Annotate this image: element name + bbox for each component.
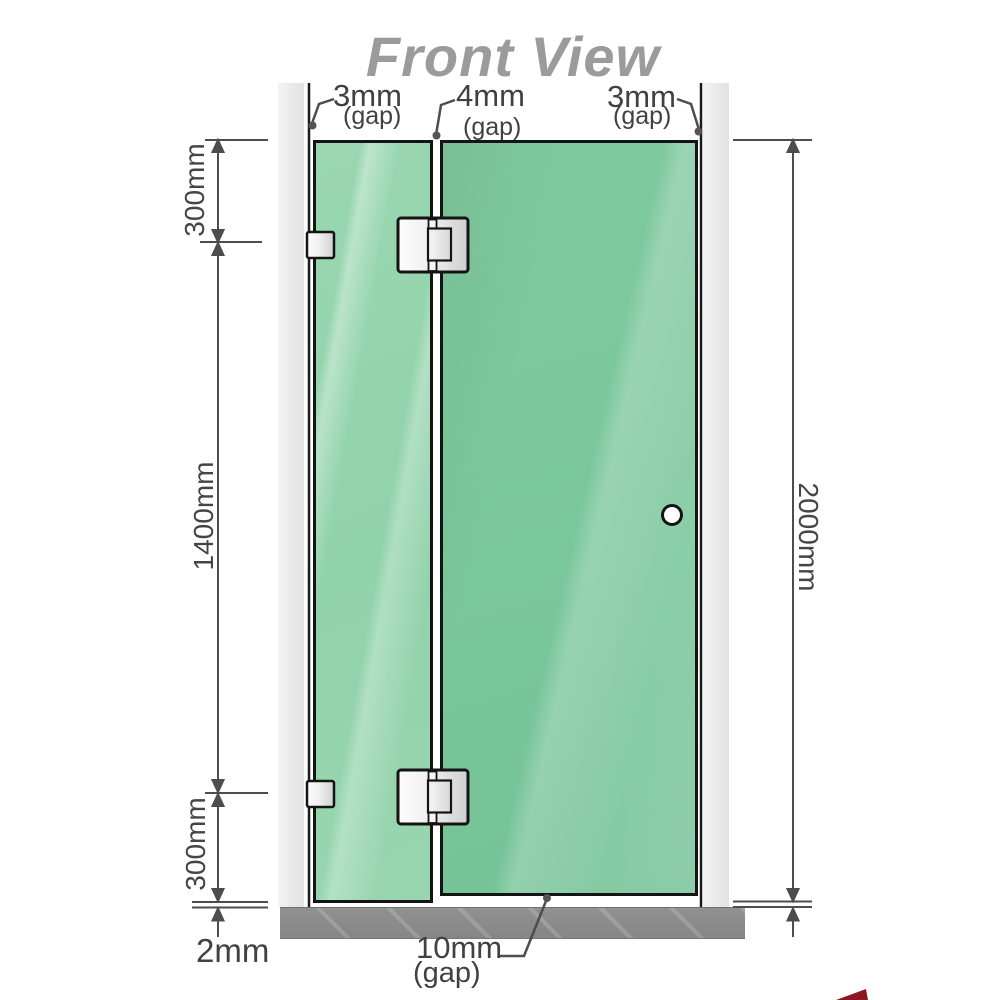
wall-edge-lines	[309, 83, 701, 907]
wall-bracket-top	[307, 232, 334, 258]
gap-qualifier-bottom: (gap)	[413, 959, 481, 988]
leader-dots	[309, 122, 703, 903]
hinge-top	[398, 218, 468, 272]
front-view-diagram: Front View	[0, 0, 1000, 1000]
leader-lines	[313, 99, 699, 956]
gap-qualifier-top-middle: (gap)	[463, 115, 521, 140]
dim-label-2mm: 2mm	[196, 934, 269, 969]
dim-label-top-300mm: 300mm	[178, 110, 212, 270]
dim-label-2000mm: 2000mm	[791, 457, 825, 617]
dim-label-1400mm: 1400mm	[187, 436, 221, 596]
dim-label-bottom-300mm: 300mm	[179, 764, 213, 924]
gap-label-top-middle: 4mm	[456, 80, 525, 113]
dimension-linework	[0, 0, 1000, 1000]
gap-qualifier-top-right: (gap)	[613, 104, 671, 129]
gap-qualifier-top-left: (gap)	[343, 104, 401, 129]
logo-fragment	[836, 989, 868, 1000]
hardware	[307, 218, 468, 824]
wall-bracket-bottom	[307, 781, 334, 807]
hinge-bottom	[398, 770, 468, 824]
